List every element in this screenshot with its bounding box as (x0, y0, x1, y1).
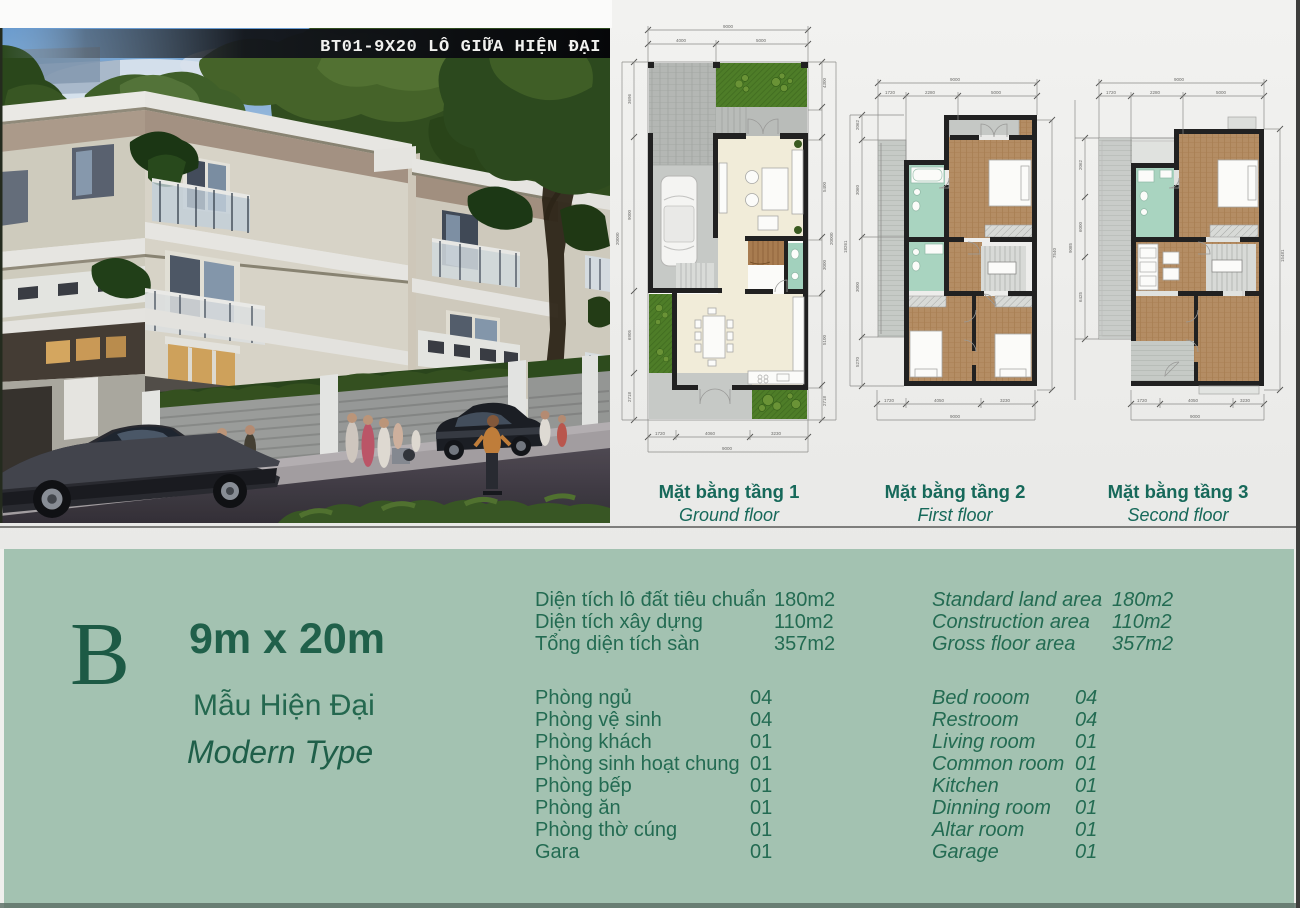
svg-text:4060: 4060 (705, 431, 716, 436)
svg-text:9000: 9000 (1174, 77, 1185, 82)
svg-text:7540: 7540 (1052, 247, 1057, 258)
svg-text:20000: 20000 (829, 232, 834, 245)
svg-text:2062: 2062 (1078, 159, 1083, 170)
svg-text:6000: 6000 (1078, 221, 1083, 232)
svg-text:1720: 1720 (884, 398, 895, 403)
svg-text:9000: 9000 (1190, 414, 1201, 419)
svg-text:5100: 5100 (822, 334, 827, 345)
svg-text:3000: 3000 (822, 259, 827, 270)
svg-text:1720: 1720 (885, 90, 896, 95)
svg-text:4050: 4050 (1188, 398, 1199, 403)
svg-text:9000: 9000 (723, 24, 734, 29)
svg-text:9085: 9085 (1068, 242, 1073, 253)
svg-text:3696: 3696 (627, 93, 632, 104)
svg-text:2280: 2280 (1150, 90, 1161, 95)
svg-text:6425: 6425 (1078, 291, 1083, 302)
svg-text:2062: 2062 (855, 119, 860, 130)
svg-text:6905: 6905 (627, 329, 632, 340)
svg-text:5270: 5270 (855, 356, 860, 367)
svg-text:3230: 3230 (1240, 398, 1251, 403)
svg-text:5000: 5000 (756, 38, 767, 43)
svg-text:5400: 5400 (822, 181, 827, 192)
svg-text:4000: 4000 (676, 38, 687, 43)
svg-text:Ground floor: Ground floor (679, 505, 780, 525)
svg-text:9000: 9000 (722, 446, 733, 451)
svg-text:5000: 5000 (991, 90, 1002, 95)
svg-text:9000: 9000 (627, 209, 632, 220)
svg-text:9000: 9000 (950, 77, 961, 82)
svg-text:Mặt bằng tầng 2: Mặt bằng tầng 2 (885, 481, 1026, 502)
svg-text:9000: 9000 (950, 414, 961, 419)
svg-text:15481: 15481 (1280, 249, 1285, 262)
svg-text:20000: 20000 (615, 232, 620, 245)
svg-text:18261: 18261 (843, 240, 848, 253)
svg-text:3060: 3060 (855, 184, 860, 195)
svg-text:1720: 1720 (655, 431, 666, 436)
svg-text:5000: 5000 (1216, 90, 1227, 95)
svg-text:4300: 4300 (822, 77, 827, 88)
svg-text:2718: 2718 (822, 395, 827, 406)
svg-text:3230: 3230 (771, 431, 782, 436)
svg-text:Mặt bằng tầng 1: Mặt bằng tầng 1 (659, 481, 800, 502)
svg-text:1720: 1720 (1106, 90, 1117, 95)
svg-text:2280: 2280 (925, 90, 936, 95)
svg-text:2718: 2718 (627, 391, 632, 402)
svg-text:3230: 3230 (1000, 398, 1011, 403)
svg-text:First floor: First floor (917, 505, 993, 525)
svg-text:3000: 3000 (855, 281, 860, 292)
svg-text:1720: 1720 (1137, 398, 1148, 403)
svg-text:Mặt bằng tầng 3: Mặt bằng tầng 3 (1108, 481, 1249, 502)
svg-text:4050: 4050 (934, 398, 945, 403)
svg-text:BT01-9X20 LÔ GIỮA HIỆN ĐẠI: BT01-9X20 LÔ GIỮA HIỆN ĐẠI (320, 36, 601, 57)
svg-text:Second floor: Second floor (1127, 505, 1229, 525)
